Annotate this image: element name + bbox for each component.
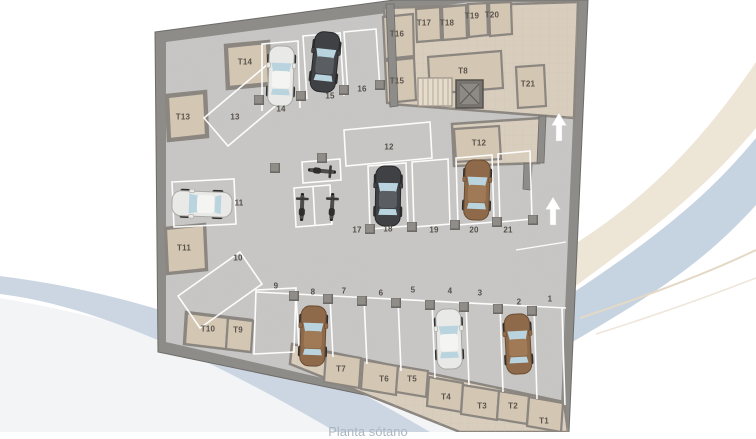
storage-room-t18 — [442, 5, 467, 40]
background-swoosh-right — [562, 62, 756, 348]
car-in-spot-8 — [297, 306, 328, 367]
elevator — [456, 80, 483, 108]
car-in-spot-11 — [172, 188, 233, 219]
storage-room-t9 — [226, 318, 253, 352]
storage-room-t21 — [516, 65, 546, 108]
storage-room-t1 — [527, 397, 563, 432]
car-in-spot-20 — [461, 160, 492, 221]
storage-room-t20 — [489, 2, 512, 36]
floorplan-drawing — [0, 0, 756, 432]
storage-room-t2 — [497, 391, 529, 424]
storage-room-t13 — [168, 93, 206, 139]
page: { "caption": "Planta sótano", "plan_type… — [0, 0, 756, 432]
car-in-spot-18 — [373, 166, 403, 226]
storage-room-t11 — [166, 225, 206, 273]
storage-room-t19 — [468, 3, 488, 37]
floorplan-canvas: 123456789101112131415161718192021T1T2T3T… — [0, 0, 756, 432]
car-in-spot-4 — [433, 309, 464, 370]
staircase — [418, 78, 452, 106]
car-in-spot-14 — [265, 46, 296, 107]
storage-room-t4 — [427, 377, 463, 412]
storage-room-t3 — [461, 385, 499, 420]
storage-room-t10 — [185, 313, 228, 349]
storage-room-t7 — [324, 352, 361, 388]
car-in-spot-2 — [502, 313, 534, 374]
storage-room-t6 — [361, 360, 398, 395]
storage-room-t17 — [416, 7, 441, 42]
